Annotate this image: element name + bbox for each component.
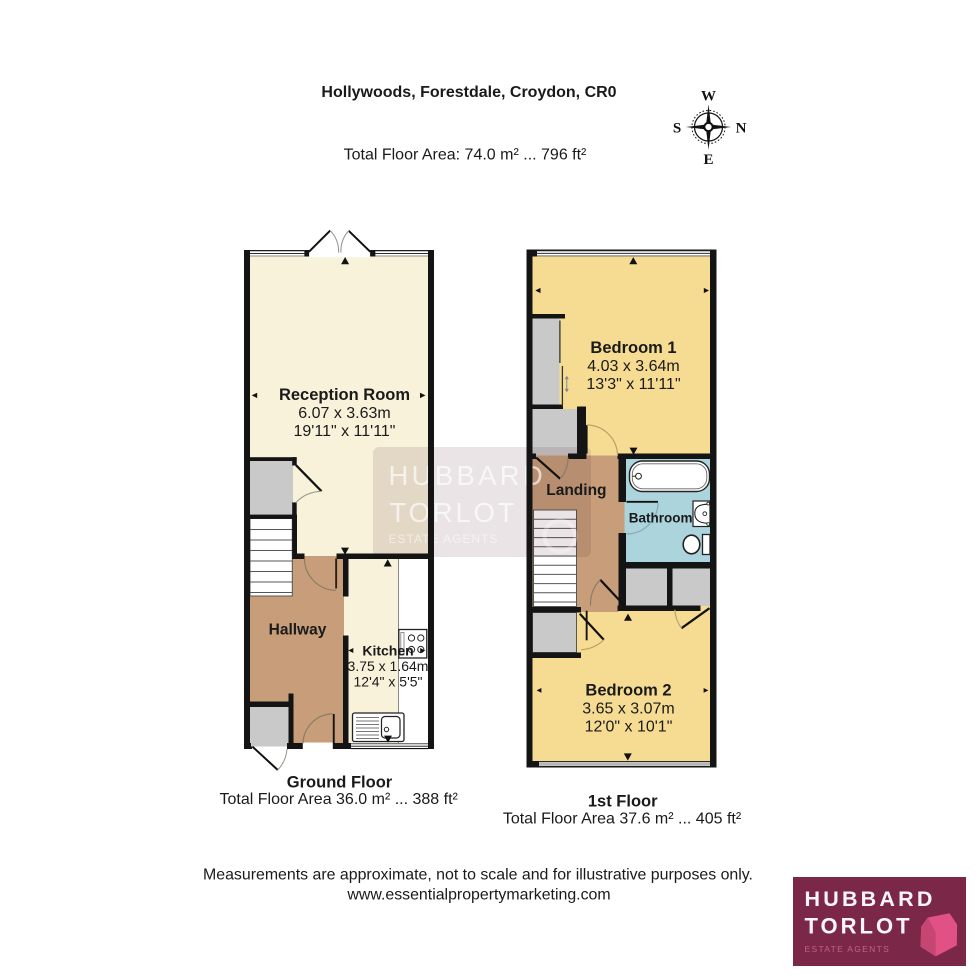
- svg-text:W: W: [701, 89, 716, 105]
- svg-text:E: E: [703, 152, 713, 168]
- svg-text:Bedroom 1: Bedroom 1: [590, 339, 676, 357]
- svg-text:HUBBARD: HUBBARD: [805, 887, 936, 911]
- svg-text:Total Floor Area 37.6 m² ... 4: Total Floor Area 37.6 m² ... 405 ft²: [503, 810, 742, 827]
- svg-text:Ground Floor: Ground Floor: [287, 774, 393, 792]
- svg-text:Hallway: Hallway: [269, 622, 327, 639]
- svg-text:N: N: [736, 120, 747, 136]
- svg-text:Hollywoods, Forestdale, Croydo: Hollywoods, Forestdale, Croydon, CR0: [321, 84, 616, 101]
- svg-text:1st Floor: 1st Floor: [588, 793, 658, 811]
- svg-text:ESTATE AGENTS: ESTATE AGENTS: [389, 532, 499, 546]
- svg-text:TORLOT: TORLOT: [390, 497, 518, 528]
- svg-text:Kitchen: Kitchen: [362, 643, 413, 659]
- svg-text:ESTATE AGENTS: ESTATE AGENTS: [805, 944, 891, 954]
- svg-text:HUBBARD: HUBBARD: [389, 460, 547, 491]
- svg-text:S: S: [673, 120, 681, 136]
- svg-text:Bathroom: Bathroom: [629, 511, 693, 526]
- svg-text:12'0" x 10'1": 12'0" x 10'1": [585, 718, 673, 735]
- svg-text:www.essentialpropertymarketing: www.essentialpropertymarketing.com: [346, 887, 610, 904]
- svg-text:Bedroom 2: Bedroom 2: [585, 682, 671, 700]
- svg-text:Landing: Landing: [546, 482, 606, 499]
- svg-text:13'3" x 11'11": 13'3" x 11'11": [586, 376, 680, 393]
- svg-text:3.75 x 1.64m: 3.75 x 1.64m: [348, 658, 429, 674]
- svg-text:Reception Room: Reception Room: [279, 386, 410, 404]
- svg-text:Total Floor Area: 74.0 m² ...: Total Floor Area: 74.0 m² ... 796 ft²: [344, 147, 587, 164]
- svg-text:Total Floor Area 36.0 m² ... 3: Total Floor Area 36.0 m² ... 388 ft²: [220, 791, 459, 808]
- svg-text:6.07 x 3.63m: 6.07 x 3.63m: [298, 405, 391, 422]
- svg-text:3.65 x 3.07m: 3.65 x 3.07m: [582, 701, 675, 718]
- svg-text:TORLOT: TORLOT: [805, 914, 913, 939]
- svg-text:4.03 x 3.64m: 4.03 x 3.64m: [587, 358, 680, 375]
- svg-text:19'11" x 11'11": 19'11" x 11'11": [294, 423, 396, 440]
- svg-text:12'4" x 5'5": 12'4" x 5'5": [354, 674, 423, 690]
- svg-text:Measurements are approximate,: Measurements are approximate, not to sca…: [203, 866, 753, 883]
